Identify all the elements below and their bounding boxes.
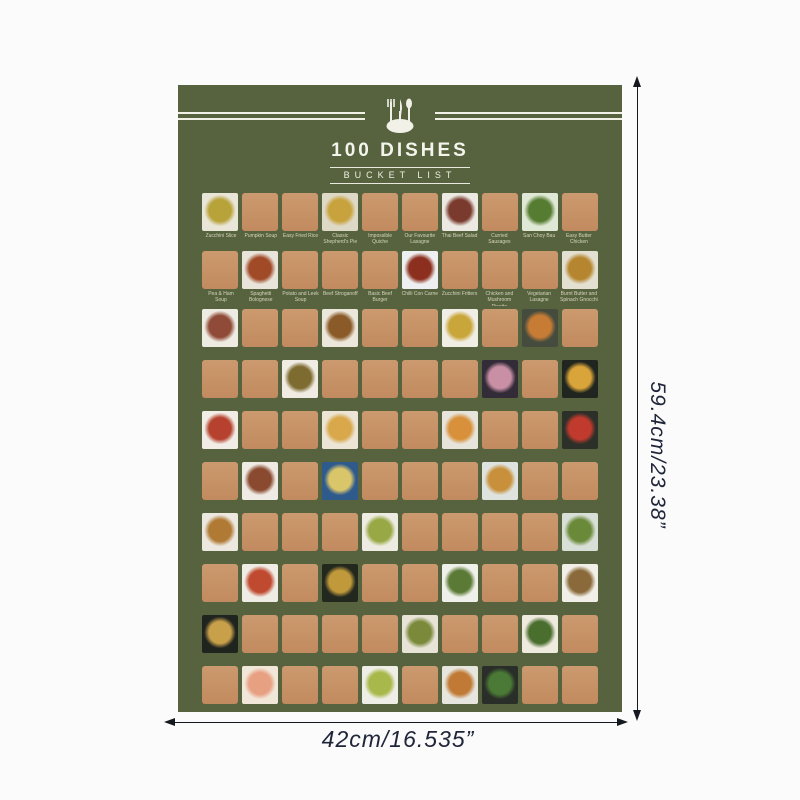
dish-photo-corn-salad <box>442 309 478 347</box>
dish-photo-chilli-con-carne <box>402 251 438 289</box>
dish-photo-prawn-pasta <box>242 564 278 602</box>
scratch-panel <box>562 193 598 231</box>
scratch-panel <box>362 564 398 602</box>
scratch-panel <box>202 360 238 398</box>
dish-grid: Zucchini SlicePumpkin SoupEasy Fried Ric… <box>202 193 598 704</box>
product-image: 100 DISHES BUCKET LIST Zucchini SlicePum… <box>0 0 800 800</box>
dish-label: Zucchini Fritters <box>441 291 479 306</box>
dish-photo-beef-broccoli <box>442 564 478 602</box>
dish-photo-shepherds-pie <box>322 193 358 231</box>
dish-photo-party-pies <box>482 462 518 500</box>
scratch-panel <box>282 309 318 347</box>
dish-photo-garden-salad <box>202 309 238 347</box>
scratch-panel <box>482 513 518 551</box>
poster-header-icon-row <box>202 95 598 137</box>
dish-label: Chicken and Mushroom Risotto <box>480 291 518 306</box>
dish-photo-roast-veggie-bowl <box>522 309 558 347</box>
dish-label: Burnt Butter and Spinach Gnocchi <box>560 291 598 306</box>
scratch-panel <box>282 251 318 289</box>
scratch-panel <box>402 360 438 398</box>
dish-photo-ramen-bowl <box>202 615 238 653</box>
width-dimension-label: 42cm/16.535” <box>322 726 475 753</box>
dish-photo-berry-cheesecake <box>482 360 518 398</box>
dish-row <box>202 462 598 500</box>
dish-photo-thai-beef-salad <box>442 193 478 231</box>
scratch-panel <box>442 513 478 551</box>
scratch-panel <box>242 615 278 653</box>
dish-photo-meat-platter <box>202 411 238 449</box>
dish-row <box>202 360 598 398</box>
scratch-panel <box>482 564 518 602</box>
scratch-panel <box>362 309 398 347</box>
scratch-panel <box>482 251 518 289</box>
scratch-panel <box>402 411 438 449</box>
scratch-panel <box>322 360 358 398</box>
scratch-panel <box>322 251 358 289</box>
scratch-panel <box>442 615 478 653</box>
poster-title: 100 DISHES <box>202 140 598 162</box>
scratch-panel <box>522 411 558 449</box>
scratch-panel <box>282 193 318 231</box>
scratch-panel <box>202 251 238 289</box>
dish-photo-zucchini-slice <box>202 193 238 231</box>
scratch-panel <box>362 193 398 231</box>
scratch-panel <box>282 462 318 500</box>
dish-photo-fried-noodles <box>322 309 358 347</box>
scratch-panel <box>242 360 278 398</box>
scratch-panel <box>522 564 558 602</box>
width-dimension-arrow <box>174 722 618 723</box>
scratch-panel <box>362 615 398 653</box>
height-dimension-label: 59.4cm/23.38” <box>645 381 669 528</box>
dish-label: Classic Shepherd's Pie <box>321 233 359 248</box>
scratch-panel <box>242 309 278 347</box>
dish-photo-grilled-vegetables <box>562 513 598 551</box>
dish-label: Beef Stroganoff <box>321 291 359 306</box>
scratch-panel <box>482 411 518 449</box>
dish-label: Zucchini Slice <box>202 233 240 248</box>
dish-label: Pumpkin Soup <box>242 233 280 248</box>
dish-photo-veggie-stew-pot <box>442 666 478 704</box>
scratch-panel <box>282 615 318 653</box>
dish-photo-dark-tray-pizza <box>562 411 598 449</box>
dish-label: Chilli Con Carne <box>401 291 439 306</box>
dish-label: Easy Fried Rice <box>282 233 320 248</box>
scratch-panel <box>442 462 478 500</box>
scratch-panel <box>402 564 438 602</box>
dish-photo-creamy-pasta <box>202 513 238 551</box>
dish-label: Impossible Quiche <box>361 233 399 248</box>
scratch-panel <box>482 193 518 231</box>
scratch-panel <box>282 411 318 449</box>
dish-photo-noodle-bowls <box>562 564 598 602</box>
dish-photo-quiche <box>322 411 358 449</box>
dish-row <box>202 666 598 704</box>
scratch-panel <box>482 615 518 653</box>
dish-label: Spaghetti Bolognese <box>242 291 280 306</box>
dish-row <box>202 411 598 449</box>
scratch-panel <box>402 193 438 231</box>
dish-photo-spaghetti-bolognese <box>242 251 278 289</box>
dish-photo-prawn-salad <box>362 513 398 551</box>
scratch-panel <box>242 193 278 231</box>
scratch-panel <box>562 462 598 500</box>
dish-label: Curried Sausages <box>480 233 518 248</box>
dish-label: Vegetarian Lasagne <box>520 291 558 306</box>
scratch-panel <box>322 666 358 704</box>
dish-photo-spinach-gnocchi <box>562 251 598 289</box>
scratch-panel <box>402 666 438 704</box>
dish-label: Easy Butter Chicken <box>560 233 598 248</box>
scratch-panel <box>482 309 518 347</box>
dish-row <box>202 615 598 653</box>
scratch-panel <box>562 666 598 704</box>
dish-label: Potato and Leek Soup <box>282 291 320 306</box>
scratch-panel <box>562 309 598 347</box>
scratch-panel <box>202 462 238 500</box>
dish-label: Our Favourite Lasagne <box>401 233 439 248</box>
scratch-panel <box>442 251 478 289</box>
dish-photo-beef-stir-fry <box>402 615 438 653</box>
dish-row <box>202 564 598 602</box>
dish-label: Basic Beef Burger <box>361 291 399 306</box>
scratch-poster: 100 DISHES BUCKET LIST Zucchini SlicePum… <box>178 85 622 712</box>
scratch-panel <box>202 666 238 704</box>
poster-subtitle: BUCKET LIST <box>330 167 471 184</box>
scratch-panel <box>522 360 558 398</box>
dish-row: Zucchini SlicePumpkin SoupEasy Fried Ric… <box>202 193 598 248</box>
header-rule-right <box>435 112 622 120</box>
dish-photo-loaded-nacho-pan <box>562 360 598 398</box>
scratch-panel <box>402 513 438 551</box>
scratch-panel <box>322 615 358 653</box>
scratch-panel <box>282 666 318 704</box>
scratch-panel <box>242 513 278 551</box>
scratch-panel <box>282 513 318 551</box>
cutlery-plate-icon <box>377 93 423 140</box>
dish-label: Pea & Ham Soup <box>202 291 240 306</box>
dish-photo-wok-stir-fry <box>322 564 358 602</box>
scratch-panel <box>242 411 278 449</box>
scratch-panel <box>362 411 398 449</box>
dish-label: Thai Beef Salad <box>441 233 479 248</box>
scratch-panel <box>522 666 558 704</box>
scratch-panel <box>522 462 558 500</box>
dish-photo-iced-drink <box>322 462 358 500</box>
dish-photo-bean-salad <box>522 615 558 653</box>
dish-photo-greens-rice-bowl <box>482 666 518 704</box>
scratch-panel <box>522 513 558 551</box>
dish-photo-pork-ribs <box>242 462 278 500</box>
scratch-panel <box>362 251 398 289</box>
header-rule-left <box>178 112 365 120</box>
scratch-panel <box>362 360 398 398</box>
scratch-panel <box>282 564 318 602</box>
dish-label: San Choy Bau <box>520 233 558 248</box>
dish-row: Pea & Ham SoupSpaghetti BolognesePotato … <box>202 251 598 306</box>
height-dimension-arrow <box>637 86 638 711</box>
scratch-panel <box>402 309 438 347</box>
scratch-panel <box>522 251 558 289</box>
scratch-panel <box>362 462 398 500</box>
scratch-panel <box>202 564 238 602</box>
poster-subtitle-wrap: BUCKET LIST <box>202 165 598 184</box>
dish-photo-pasta-bake <box>442 411 478 449</box>
scratch-panel <box>322 513 358 551</box>
dish-photo-san-choy-bau <box>522 193 558 231</box>
scratch-panel <box>562 615 598 653</box>
dish-row <box>202 513 598 551</box>
dish-row <box>202 309 598 347</box>
dish-photo-pesto-pasta <box>362 666 398 704</box>
dish-photo-salmon-salad <box>242 666 278 704</box>
scratch-panel <box>402 462 438 500</box>
dish-photo-spaghetti-plate <box>282 360 318 398</box>
scratch-panel <box>442 360 478 398</box>
